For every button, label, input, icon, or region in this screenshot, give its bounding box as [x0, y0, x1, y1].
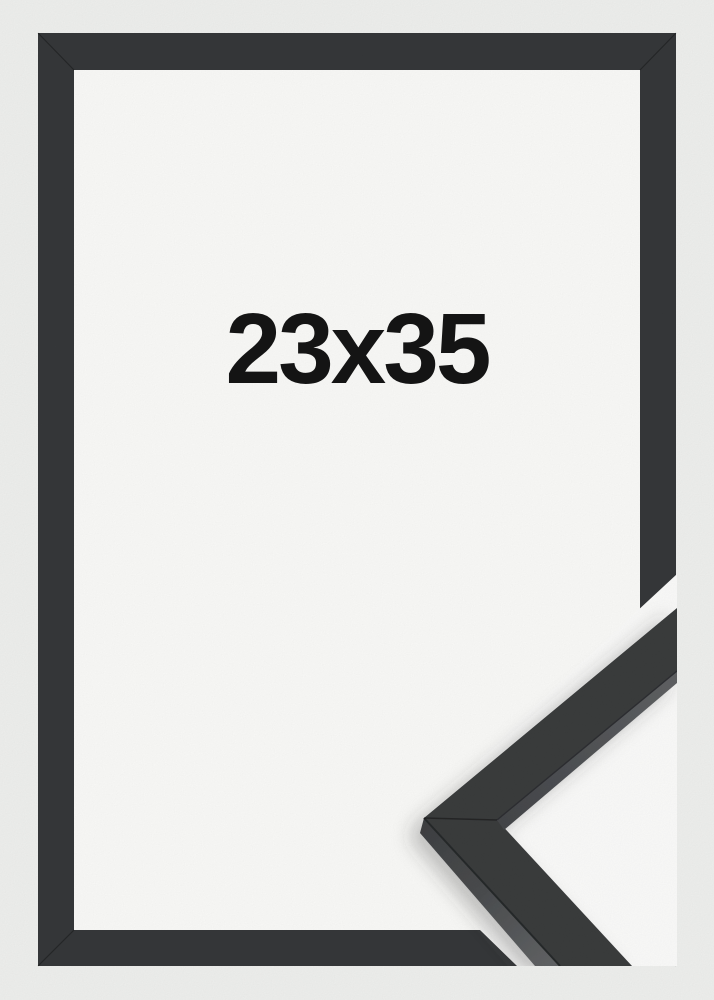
product-image: 23x35 — [0, 0, 714, 1000]
photo-grain-overlay — [0, 0, 714, 1000]
frame-product-photo: 23x35 — [0, 0, 714, 1000]
size-label: 23x35 — [225, 293, 488, 405]
